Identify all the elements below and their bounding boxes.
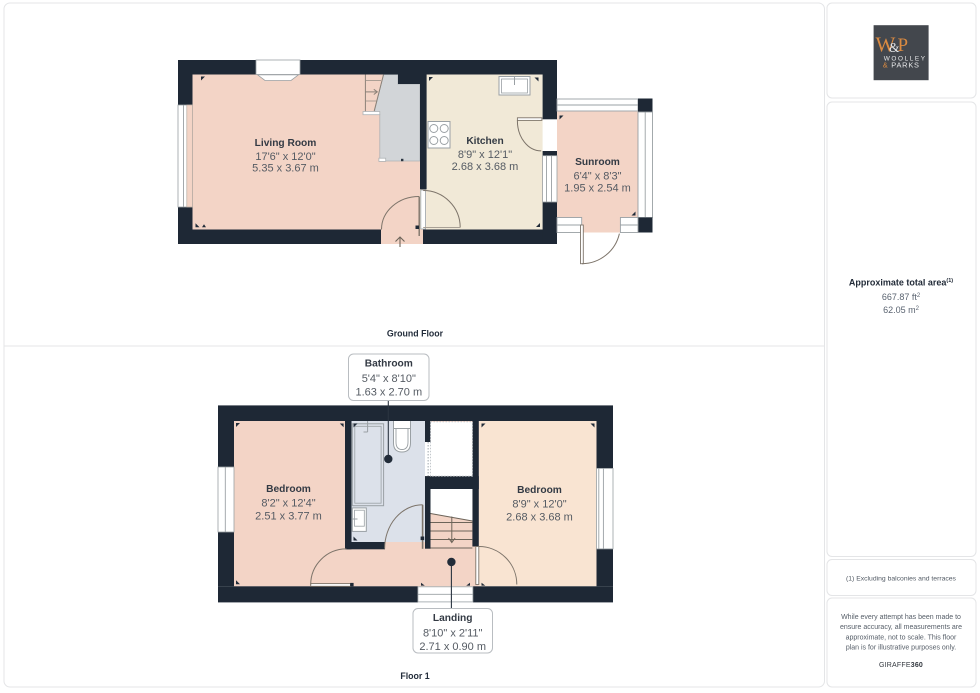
svg-text:plan is for illustrative purpo: plan is for illustrative purposes only. [846,645,956,652]
svg-text:While every attempt has been m: While every attempt has been made to [841,614,961,621]
svg-text:Bedroom: Bedroom [266,484,311,495]
svg-text:1.63 x 2.70 m: 1.63 x 2.70 m [355,386,422,398]
svg-text:Approximate total area(1): Approximate total area(1) [849,278,953,288]
svg-text:667.87 ft2: 667.87 ft2 [882,292,921,302]
svg-text:Living Room: Living Room [255,138,317,149]
svg-text:8'9" x 12'0": 8'9" x 12'0" [512,499,566,511]
svg-text:Ground Floor: Ground Floor [387,329,444,339]
svg-text:6'4" x 8'3": 6'4" x 8'3" [573,171,621,183]
svg-text:Floor 1: Floor 1 [400,671,429,681]
svg-text:5.35 x 3.67 m: 5.35 x 3.67 m [252,162,319,174]
svg-text:2.71 x 0.90 m: 2.71 x 0.90 m [419,641,486,653]
svg-text:8'2" x 12'4": 8'2" x 12'4" [261,497,315,509]
svg-text:approximate, not to scale. Thi: approximate, not to scale. This floor [846,634,957,641]
svg-text:1.95 x 2.54 m: 1.95 x 2.54 m [564,183,631,195]
svg-text:ensure accuracy, all measureme: ensure accuracy, all measurements are [840,624,962,631]
svg-text:Landing: Landing [433,613,473,624]
svg-text:Bathroom: Bathroom [365,359,413,370]
svg-text:Kitchen: Kitchen [466,136,503,147]
svg-text:2.68 x 3.68 m: 2.68 x 3.68 m [506,512,573,524]
svg-text:2.51 x 3.77 m: 2.51 x 3.77 m [255,511,322,523]
svg-text:P: P [898,35,909,56]
svg-text:8'9" x 12'1": 8'9" x 12'1" [458,149,512,161]
svg-text:& PARKS: & PARKS [883,61,920,70]
svg-text:GIRAFFE360: GIRAFFE360 [879,662,923,669]
svg-text:62.05 m2: 62.05 m2 [883,305,920,315]
svg-text:Bedroom: Bedroom [517,485,562,496]
svg-text:2.68 x 3.68 m: 2.68 x 3.68 m [452,161,519,173]
svg-text:Sunroom: Sunroom [575,157,620,168]
svg-text:5'4" x 8'10": 5'4" x 8'10" [362,373,416,385]
svg-text:(1) Excluding balconies and te: (1) Excluding balconies and terraces [846,576,957,583]
svg-text:8'10" x 2'11": 8'10" x 2'11" [423,627,483,639]
